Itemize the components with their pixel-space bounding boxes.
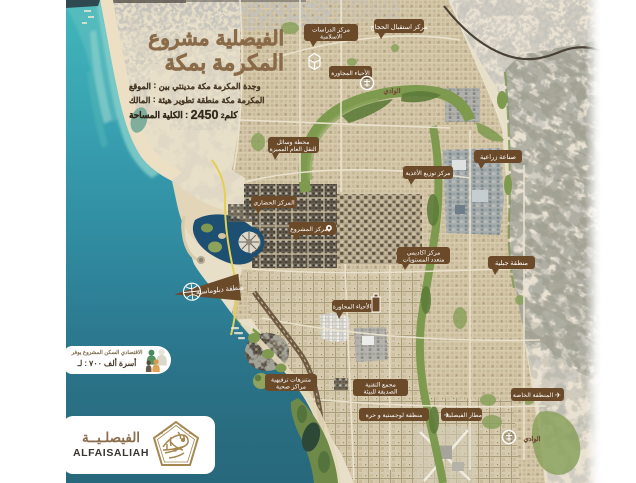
svg-text:صناعة زراعية: صناعة زراعية [480,153,517,161]
svg-text:محطة وسائل: محطة وسائل [277,139,310,146]
svg-text:الاسلامية: الاسلامية [320,34,342,41]
svg-text:منطقة لوجستية و حرة: منطقة لوجستية و حرة [366,412,423,419]
svg-text:مراكز صحية: مراكز صحية [276,384,306,391]
svg-text:متعدد المستويات: متعدد المستويات [403,257,445,264]
svg-text:✈: ✈ [444,413,450,420]
svg-text:المنطقة الخاصة: المنطقة الخاصة [513,392,554,399]
svg-text:مركز استقبال الحجاج: مركز استقبال الحجاج [371,23,428,31]
svg-text:متنزهات ترفيهية: متنزهات ترفيهية [271,377,311,384]
svg-text:مجمع التقنية: مجمع التقنية [365,382,396,389]
svg-text:الوادي: الوادي [524,435,541,444]
svg-text:مركز اكاديمي: مركز اكاديمي [407,250,441,257]
svg-text:المركز الحضاري: المركز الحضاري [253,200,295,207]
svg-text:مركز المشروع: مركز المشروع [290,226,328,233]
svg-text:الصديقة للبيئة: الصديقة للبيئة [364,389,398,396]
svg-text:منطقة جبلية: منطقة جبلية [495,259,528,267]
svg-text:مطار الفيصلية: مطار الفيصلية [446,412,482,419]
svg-text:مركز الدراسات: مركز الدراسات [312,27,350,34]
svg-text:النقل العام المميزة: النقل العام المميزة [270,146,317,153]
svg-text:الوادي: الوادي [384,87,401,96]
svg-text:✈: ✈ [555,393,561,400]
